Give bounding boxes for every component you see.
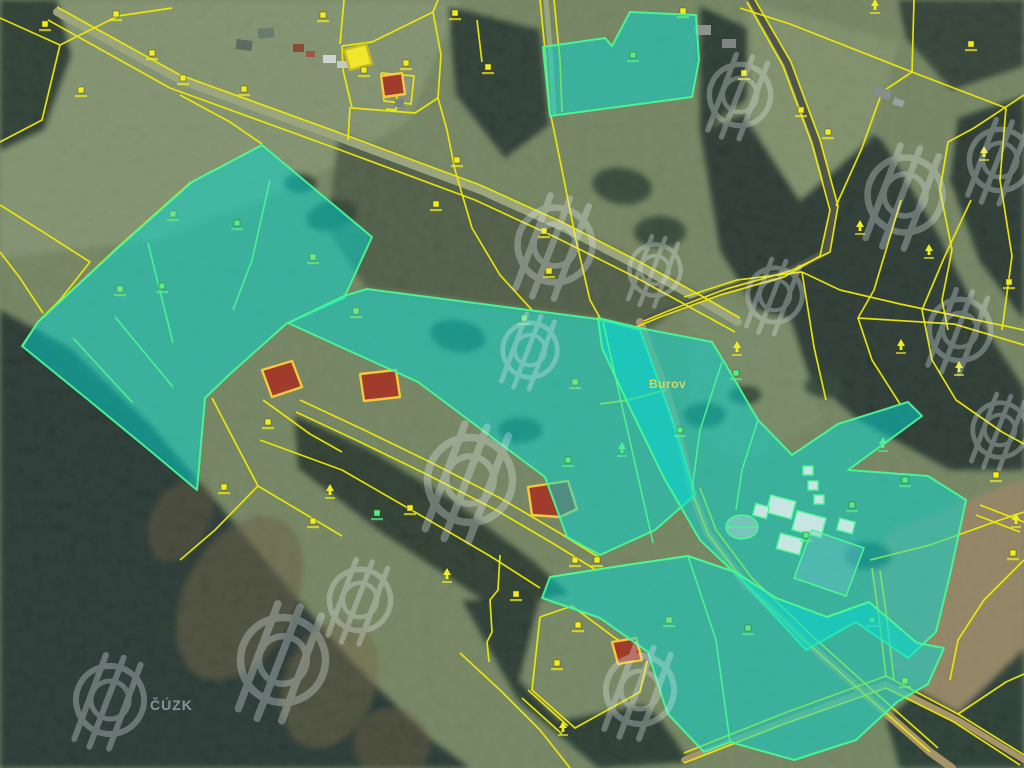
parcel-marker: [849, 502, 855, 508]
parcel-number-label: [231, 228, 243, 230]
parcel-number-label: [742, 633, 754, 635]
parcel-marker: [485, 64, 491, 70]
parcel-marker: [594, 557, 600, 563]
parcel-number-label: [674, 435, 686, 437]
building: [323, 55, 336, 63]
parcel-number-label: [800, 540, 812, 542]
parcel-number-label: [262, 427, 274, 429]
parcel-number-label: [591, 565, 603, 567]
parcel-marker: [554, 660, 560, 666]
parcel-marker: [42, 21, 48, 27]
highlighted-building: [381, 73, 405, 97]
parcel-number-label: [371, 518, 383, 520]
parcel-number-label: [1003, 287, 1015, 289]
map-viewport: Burov ČÚZK: [0, 0, 1024, 768]
parcel-number-label: [451, 165, 463, 167]
parcel-marker: [221, 484, 227, 490]
parcel-number-label: [795, 115, 807, 117]
parcel-number-label: [822, 137, 834, 139]
parcel-marker: [1010, 550, 1016, 556]
parcel-marker: [149, 50, 155, 56]
parcel-number-label: [896, 352, 906, 354]
parcel-number-label: [870, 12, 880, 14]
parcel-number-label: [990, 480, 1002, 482]
parcel-number-label: [358, 75, 370, 77]
parcel-marker: [407, 505, 413, 511]
parcel-marker: [374, 510, 380, 516]
source-label-cuzk: ČÚZK: [150, 696, 193, 713]
parcel-marker: [733, 370, 739, 376]
parcel-marker: [546, 268, 552, 274]
building: [293, 44, 304, 52]
parcel-number-label: [404, 513, 416, 515]
parcel-number-label: [730, 378, 742, 380]
parcel-number-label: [218, 492, 230, 494]
parcel-marker: [433, 201, 439, 207]
parcel-number-label: [617, 455, 627, 457]
parcel-number-label: [1011, 526, 1021, 528]
parcel-marker: [234, 220, 240, 226]
parcel-marker: [680, 8, 686, 14]
parcel-number-label: [899, 485, 911, 487]
parcel-number-label: [538, 236, 550, 238]
parcel-number-label: [39, 29, 51, 31]
parcel-number-label: [1007, 558, 1019, 560]
parcel-marker: [113, 11, 119, 17]
parcel-number-label: [627, 60, 639, 62]
parcel-marker: [565, 457, 571, 463]
parcel-marker: [993, 472, 999, 478]
building: [306, 51, 315, 57]
parcel-number-label: [482, 72, 494, 74]
parcel-marker: [78, 87, 84, 93]
building: [722, 39, 736, 48]
farm-building: [753, 503, 770, 518]
highlighted-building: [344, 44, 372, 70]
parcel-marker: [513, 591, 519, 597]
parcel-marker: [320, 12, 326, 18]
parcel-marker: [572, 557, 578, 563]
parcel-number-label: [156, 291, 168, 293]
farm-building: [814, 495, 824, 504]
parcel-marker: [1006, 279, 1012, 285]
building: [337, 61, 348, 68]
parcel-number-label: [400, 68, 412, 70]
parcel-number-label: [238, 94, 250, 96]
highlighted-building: [360, 370, 400, 401]
parcel-number-label: [846, 510, 858, 512]
parcel-marker: [403, 60, 409, 66]
parcel-number-label: [558, 734, 568, 736]
parcel-number-label: [146, 58, 158, 60]
parcel-number-label: [442, 581, 452, 583]
parcel-number-label: [510, 599, 522, 601]
place-label-burov: Burov: [649, 377, 686, 391]
parcel-number-label: [572, 630, 584, 632]
parcel-number-label: [449, 18, 461, 20]
parcel-number-label: [965, 49, 977, 51]
parcel-marker: [798, 107, 804, 113]
farm-building: [808, 481, 818, 490]
parcel-marker: [902, 477, 908, 483]
parcel-marker: [968, 41, 974, 47]
parcel-marker: [180, 75, 186, 81]
parcel-marker: [745, 625, 751, 631]
parcel-marker: [803, 532, 809, 538]
parcel-number-label: [317, 20, 329, 22]
parcel-marker: [310, 518, 316, 524]
parcel-number-label: [110, 19, 122, 21]
building: [258, 27, 275, 39]
parcel-marker: [452, 10, 458, 16]
parcel-number-label: [177, 83, 189, 85]
parcel-marker: [241, 86, 247, 92]
parcel-marker: [361, 67, 367, 73]
parcel-number-label: [878, 450, 888, 452]
parcel-marker: [454, 157, 460, 163]
farm-building: [803, 466, 813, 475]
parcel-number-label: [307, 526, 319, 528]
parcel-number-label: [924, 257, 934, 259]
cadastral-map-canvas[interactable]: Burov ČÚZK: [0, 0, 1024, 768]
building: [395, 99, 404, 107]
parcel-number-label: [732, 354, 742, 356]
parcel-number-label: [430, 209, 442, 211]
parcel-number-label: [569, 565, 581, 567]
parcel-number-label: [562, 465, 574, 467]
parcel-marker: [825, 129, 831, 135]
parcel-number-label: [75, 95, 87, 97]
parcel-marker: [630, 52, 636, 58]
parcel-marker: [159, 283, 165, 289]
parcel-number-label: [551, 668, 563, 670]
parcel-marker: [677, 427, 683, 433]
parcel-marker: [265, 419, 271, 425]
parcel-number-label: [325, 497, 335, 499]
parcel-marker: [575, 622, 581, 628]
